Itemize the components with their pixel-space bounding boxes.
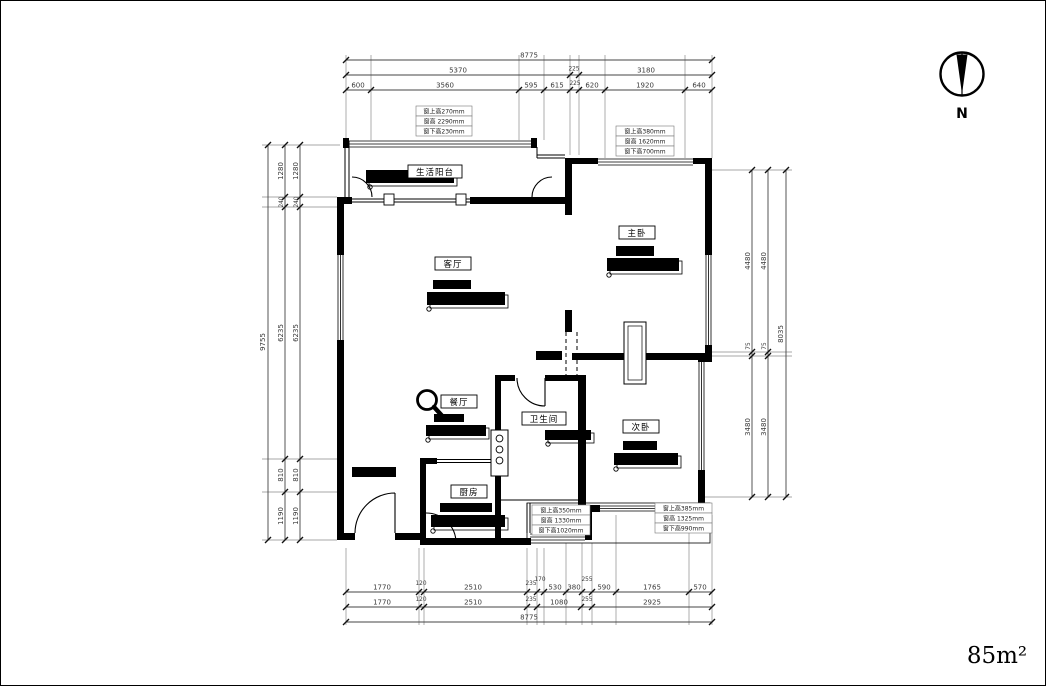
room-labels: 生活阳台 客厅 主卧 餐厅 卫生间 次卧 厨房 — [408, 165, 659, 498]
north-label: N — [956, 106, 968, 122]
dim-label: 255 — [581, 577, 592, 583]
dim-label: 530 — [548, 584, 561, 592]
dim-label: 810 — [277, 468, 285, 481]
room-label-master: 主卧 — [627, 228, 646, 239]
dim-label: 225 — [569, 81, 580, 87]
bottom-dimension-labels: 1770 120 2510 235 170 530 380 255 590 17… — [373, 577, 707, 622]
dim-label: 1770 — [373, 599, 391, 607]
dim-label: 600 — [351, 82, 364, 90]
right-dimension-labels: 4480 75 3480 4480 75 3480 8035 — [744, 252, 785, 436]
dim-label: 2510 — [464, 584, 482, 592]
window-note-line: 窗高 2290mm — [424, 118, 465, 126]
room-label-kitchen: 厨房 — [459, 487, 478, 498]
wardrobe-symbol — [624, 322, 646, 384]
dim-label: 6235 — [277, 324, 285, 342]
window-note-line: 窗下高1020mm — [539, 527, 584, 535]
left-dimension-labels: 1280 240 6235 810 1190 1280 240 6235 810… — [259, 162, 300, 525]
floor-plan-drawing: 8775 5370 225 3180 600 3560 595 615 225 … — [0, 0, 1046, 686]
kitchen-counter — [431, 515, 505, 527]
entry-door-arc — [355, 493, 395, 533]
dim-label: 615 — [550, 82, 563, 90]
fixtures — [491, 322, 646, 476]
entry-cabinet — [352, 467, 396, 477]
dim-label: 8035 — [777, 325, 785, 343]
window-note-top-right: 窗上高380mm 窗高 1620mm 窗下高700mm — [616, 126, 674, 156]
dim-label: 240 — [294, 196, 300, 207]
dim-label: 2925 — [643, 599, 661, 607]
dim-label: 9755 — [259, 333, 267, 351]
bathroom-door-arc — [517, 378, 545, 406]
dim-label: 570 — [693, 584, 706, 592]
dim-label: 5370 — [449, 67, 467, 75]
dim-label: 380 — [567, 584, 580, 592]
hall-cabinet — [536, 351, 562, 360]
dim-label: 255 — [581, 597, 592, 603]
compass-needle-icon — [957, 55, 968, 95]
balcony-door-arc-right — [532, 177, 552, 197]
dim-label: 1770 — [373, 584, 391, 592]
dim-label: 620 — [585, 82, 598, 90]
bathroom-vanity — [545, 430, 591, 440]
dim-label: 8775 — [520, 614, 538, 622]
dim-label: 240 — [279, 196, 285, 207]
window-note-line: 窗上高350mm — [540, 507, 581, 515]
window-note-line: 窗高 1330mm — [541, 517, 582, 525]
dim-label: 4480 — [744, 252, 752, 270]
window-note-line: 窗高 1325mm — [663, 515, 704, 523]
dim-label: 75 — [762, 342, 768, 350]
dim-label: 2510 — [464, 599, 482, 607]
window-note-bottom-left: 窗上高350mm 窗高 1330mm 窗下高1020mm — [532, 505, 590, 535]
dim-label: 120 — [415, 581, 426, 587]
living-sofa — [427, 292, 505, 305]
window-note-top-left: 窗上高270mm 窗高 2290mm 窗下高230mm — [416, 106, 472, 136]
dining-table — [426, 425, 486, 436]
window-note-line: 窗下高700mm — [624, 148, 665, 156]
window-note-line: 窗上高380mm — [624, 128, 665, 136]
dim-label: 1080 — [550, 599, 568, 607]
dim-label: 1280 — [277, 162, 285, 180]
north-compass: N — [941, 53, 984, 123]
dim-label: 120 — [415, 597, 426, 603]
page-border — [1, 1, 1046, 686]
floor-plan-canvas: 8775 5370 225 3180 600 3560 595 615 225 … — [0, 0, 1046, 686]
dim-label: 4480 — [760, 252, 768, 270]
window-note-line: 窗上高385mm — [663, 505, 704, 513]
dim-label: 3480 — [744, 418, 752, 436]
dim-label: 810 — [292, 468, 300, 481]
dim-label: 1280 — [292, 162, 300, 180]
room-label-bathroom: 卫生间 — [530, 414, 559, 425]
window-note-line: 窗高 1620mm — [625, 138, 666, 146]
area-label: 85m² — [967, 643, 1027, 669]
dim-label: 3480 — [760, 418, 768, 436]
dim-label: 1920 — [636, 82, 654, 90]
dim-label: 8775 — [520, 52, 538, 60]
dim-label: 590 — [597, 584, 610, 592]
master-bed — [607, 258, 679, 271]
dim-label: 640 — [692, 82, 705, 90]
dim-label: 170 — [534, 577, 545, 583]
dim-label: 595 — [524, 82, 537, 90]
dim-label: 3560 — [436, 82, 454, 90]
dim-label: 3180 — [637, 67, 655, 75]
room-label-living: 客厅 — [443, 259, 462, 270]
dim-label: 235 — [525, 597, 536, 603]
dim-label: 225 — [568, 67, 579, 73]
top-dimension-labels: 8775 5370 225 3180 600 3560 595 615 225 … — [351, 52, 705, 90]
window-note-line: 窗下高230mm — [423, 128, 464, 136]
window-note-line: 窗上高270mm — [423, 108, 464, 116]
dim-label: 1190 — [277, 507, 285, 525]
room-label-balcony: 生活阳台 — [416, 167, 454, 178]
dim-label: 6235 — [292, 324, 300, 342]
second-bed — [614, 453, 678, 465]
dim-label: 1190 — [292, 507, 300, 525]
window-note-line: 窗下高990mm — [663, 525, 704, 533]
room-label-dining: 餐厅 — [449, 398, 468, 408]
room-label-second-bedroom: 次卧 — [631, 422, 650, 433]
dim-label: 1765 — [643, 584, 661, 592]
window-note-bottom-right: 窗上高385mm 窗高 1325mm 窗下高990mm — [655, 503, 712, 533]
dim-label: 75 — [746, 342, 752, 350]
